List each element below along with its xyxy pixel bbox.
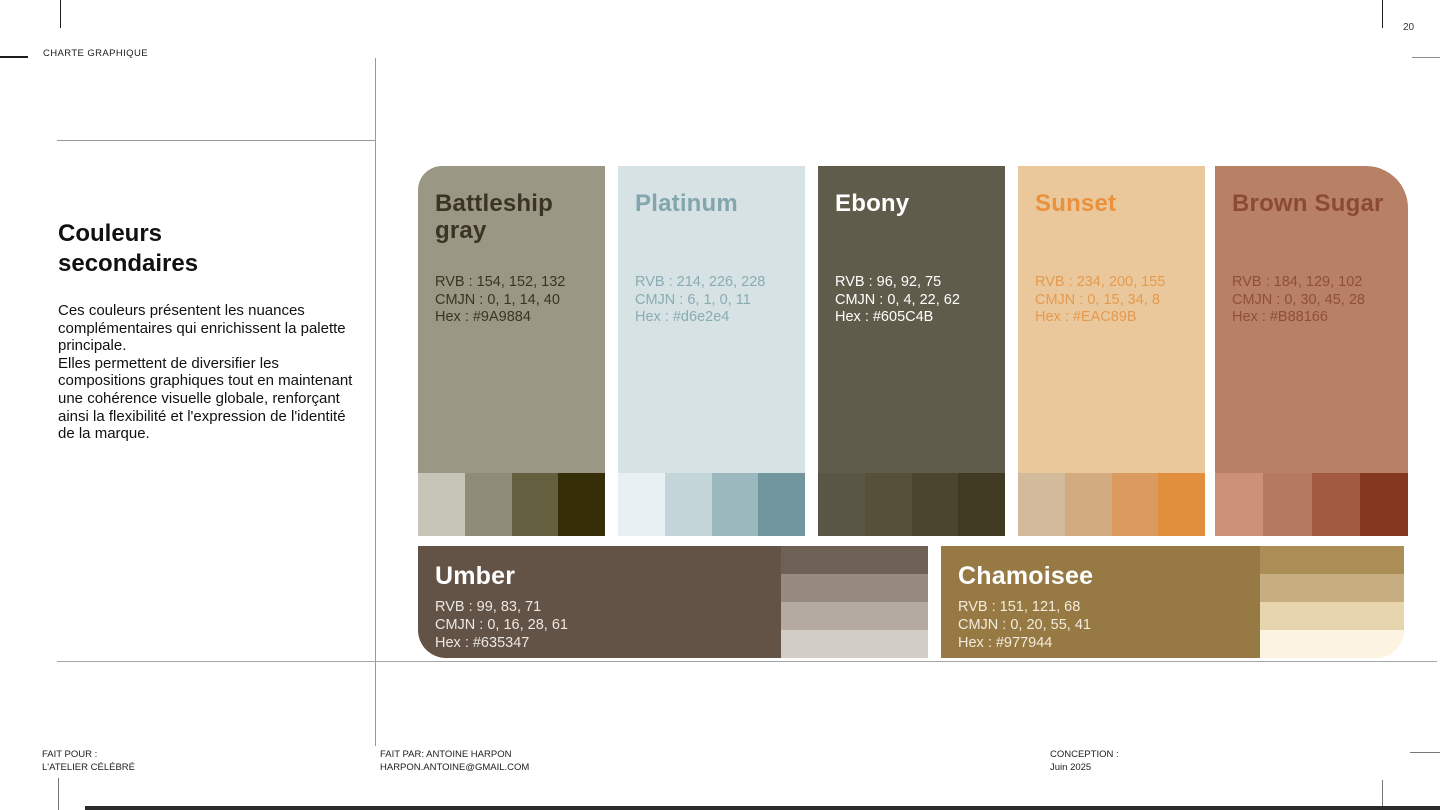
tint-stripe-column xyxy=(781,546,928,658)
tint-swatch xyxy=(465,473,512,536)
color-name: Ebony xyxy=(835,190,989,217)
tint-swatch xyxy=(512,473,559,536)
cmjn-value: CMJN : 0, 1, 14, 40 xyxy=(435,292,565,310)
color-block: Chamoisee RVB : 151, 121, 68 CMJN : 0, 2… xyxy=(941,546,1260,658)
bottom-edge-bar xyxy=(85,806,1440,810)
cmjn-value: CMJN : 0, 16, 28, 61 xyxy=(435,616,568,634)
color-card-sunset: Sunset RVB : 234, 200, 155 CMJN : 0, 15,… xyxy=(1018,166,1205,536)
color-name: Umber xyxy=(435,562,781,591)
tint-swatch xyxy=(958,473,1005,536)
color-name: Sunset xyxy=(1035,190,1189,217)
rvb-value: RVB : 234, 200, 155 xyxy=(1035,274,1165,292)
tint-stripe-column xyxy=(1260,546,1404,658)
tint-swatch xyxy=(712,473,759,536)
cmjn-value: CMJN : 0, 20, 55, 41 xyxy=(958,616,1091,634)
tint-stripe xyxy=(781,602,928,630)
color-name: Battleship gray xyxy=(435,190,589,244)
color-values: RVB : 96, 92, 75 CMJN : 0, 4, 22, 62 Hex… xyxy=(835,274,960,327)
conception-value: Juin 2025 xyxy=(1050,761,1119,774)
tint-stripe xyxy=(781,574,928,602)
color-values: RVB : 154, 152, 132 CMJN : 0, 1, 14, 40 … xyxy=(435,274,565,327)
tint-stripe xyxy=(1260,574,1404,602)
hex-value: Hex : #EAC89B xyxy=(1035,309,1165,327)
made-for-label: FAIT POUR : xyxy=(42,748,135,761)
hex-value: Hex : #d6e2e4 xyxy=(635,309,765,327)
color-block: Ebony RVB : 96, 92, 75 CMJN : 0, 4, 22, … xyxy=(818,166,1005,473)
rvb-value: RVB : 151, 121, 68 xyxy=(958,598,1091,616)
tint-swatch xyxy=(818,473,865,536)
tint-swatch-row xyxy=(618,473,805,536)
footer-right-rule xyxy=(1410,752,1440,753)
header-right-rule xyxy=(1412,57,1440,58)
secondary-colors-grid: Battleship gray RVB : 154, 152, 132 CMJN… xyxy=(418,166,1408,536)
color-values: RVB : 99, 83, 71 CMJN : 0, 16, 28, 61 He… xyxy=(435,598,568,652)
tint-swatch xyxy=(558,473,605,536)
rvb-value: RVB : 96, 92, 75 xyxy=(835,274,960,292)
made-by-value: HARPON.ANTOINE@GMAIL.COM xyxy=(380,761,529,774)
tint-swatch-row xyxy=(818,473,1005,536)
tint-swatch-row xyxy=(1215,473,1408,536)
color-values: RVB : 234, 200, 155 CMJN : 0, 15, 34, 8 … xyxy=(1035,274,1165,327)
color-values: RVB : 184, 129, 102 CMJN : 0, 30, 45, 28… xyxy=(1232,274,1365,327)
rvb-value: RVB : 99, 83, 71 xyxy=(435,598,568,616)
hex-value: Hex : #605C4B xyxy=(835,309,960,327)
color-values: RVB : 151, 121, 68 CMJN : 0, 20, 55, 41 … xyxy=(958,598,1091,652)
hex-value: Hex : #9A9884 xyxy=(435,309,565,327)
cmjn-value: CMJN : 0, 30, 45, 28 xyxy=(1232,292,1365,310)
color-block: Battleship gray RVB : 154, 152, 132 CMJN… xyxy=(418,166,605,473)
color-block: Umber RVB : 99, 83, 71 CMJN : 0, 16, 28,… xyxy=(418,546,781,658)
tint-swatch xyxy=(758,473,805,536)
tint-swatch xyxy=(1263,473,1311,536)
hex-value: Hex : #635347 xyxy=(435,634,568,652)
tint-swatch xyxy=(1065,473,1112,536)
color-block: Sunset RVB : 234, 200, 155 CMJN : 0, 15,… xyxy=(1018,166,1205,473)
color-name: Chamoisee xyxy=(958,562,1260,591)
tint-stripe xyxy=(1260,602,1404,630)
document-header-label: CHARTE GRAPHIQUE xyxy=(43,48,148,59)
tint-swatch xyxy=(418,473,465,536)
tint-swatch xyxy=(1018,473,1065,536)
footer-made-for: FAIT POUR : L'ATELIER CÉLÉBRÉ xyxy=(42,748,135,774)
color-values: RVB : 214, 226, 228 CMJN : 6, 1, 0, 11 H… xyxy=(635,274,765,327)
color-card-ebony: Ebony RVB : 96, 92, 75 CMJN : 0, 4, 22, … xyxy=(818,166,1005,536)
color-name: Platinum xyxy=(635,190,789,217)
tint-swatch xyxy=(865,473,912,536)
charte-graphique-page: CHARTE GRAPHIQUE 20 Couleurs secondaires… xyxy=(0,0,1440,810)
bottom-left-vertical-tick xyxy=(58,778,59,810)
intro-top-rule xyxy=(57,140,375,141)
tint-swatch-row xyxy=(1018,473,1205,536)
tint-swatch xyxy=(1158,473,1205,536)
tint-stripe xyxy=(1260,546,1404,574)
rvb-value: RVB : 184, 129, 102 xyxy=(1232,274,1365,292)
content-bottom-rule xyxy=(57,661,1437,662)
color-block: Brown Sugar RVB : 184, 129, 102 CMJN : 0… xyxy=(1215,166,1408,473)
color-name: Brown Sugar xyxy=(1232,190,1392,217)
tint-stripe xyxy=(781,630,928,658)
color-card-umber: Umber RVB : 99, 83, 71 CMJN : 0, 16, 28,… xyxy=(418,546,928,658)
cmjn-value: CMJN : 0, 15, 34, 8 xyxy=(1035,292,1165,310)
tint-swatch xyxy=(1360,473,1408,536)
tint-swatch xyxy=(618,473,665,536)
top-right-vertical-tick xyxy=(1382,0,1383,28)
tint-swatch xyxy=(912,473,959,536)
color-block: Platinum RVB : 214, 226, 228 CMJN : 6, 1… xyxy=(618,166,805,473)
tint-swatch xyxy=(1112,473,1159,536)
made-by-label: FAIT PAR: ANTOINE HARPON xyxy=(380,748,529,761)
color-card-battleship-gray: Battleship gray RVB : 154, 152, 132 CMJN… xyxy=(418,166,605,536)
page-number: 20 xyxy=(1403,22,1414,33)
section-title: Couleurs secondaires xyxy=(58,219,268,279)
secondary-colors-bottom-row: Umber RVB : 99, 83, 71 CMJN : 0, 16, 28,… xyxy=(418,546,1408,658)
color-card-platinum: Platinum RVB : 214, 226, 228 CMJN : 6, 1… xyxy=(618,166,805,536)
column-divider-rule xyxy=(375,58,376,746)
tint-stripe xyxy=(1260,630,1404,658)
color-card-chamoisee: Chamoisee RVB : 151, 121, 68 CMJN : 0, 2… xyxy=(941,546,1404,658)
footer-made-by: FAIT PAR: ANTOINE HARPON HARPON.ANTOINE@… xyxy=(380,748,529,774)
tint-swatch-row xyxy=(418,473,605,536)
tint-stripe xyxy=(781,546,928,574)
tint-swatch xyxy=(1312,473,1360,536)
top-left-vertical-tick xyxy=(60,0,61,28)
section-description: Ces couleurs présentent les nuances comp… xyxy=(58,302,354,443)
tint-swatch xyxy=(1215,473,1263,536)
header-left-rule xyxy=(0,56,28,58)
tint-swatch xyxy=(665,473,712,536)
conception-label: CONCEPTION : xyxy=(1050,748,1119,761)
hex-value: Hex : #977944 xyxy=(958,634,1091,652)
cmjn-value: CMJN : 0, 4, 22, 62 xyxy=(835,292,960,310)
hex-value: Hex : #B88166 xyxy=(1232,309,1365,327)
rvb-value: RVB : 154, 152, 132 xyxy=(435,274,565,292)
color-card-brown-sugar: Brown Sugar RVB : 184, 129, 102 CMJN : 0… xyxy=(1215,166,1408,536)
made-for-value: L'ATELIER CÉLÉBRÉ xyxy=(42,761,135,774)
footer-conception: CONCEPTION : Juin 2025 xyxy=(1050,748,1119,774)
cmjn-value: CMJN : 6, 1, 0, 11 xyxy=(635,292,765,310)
rvb-value: RVB : 214, 226, 228 xyxy=(635,274,765,292)
